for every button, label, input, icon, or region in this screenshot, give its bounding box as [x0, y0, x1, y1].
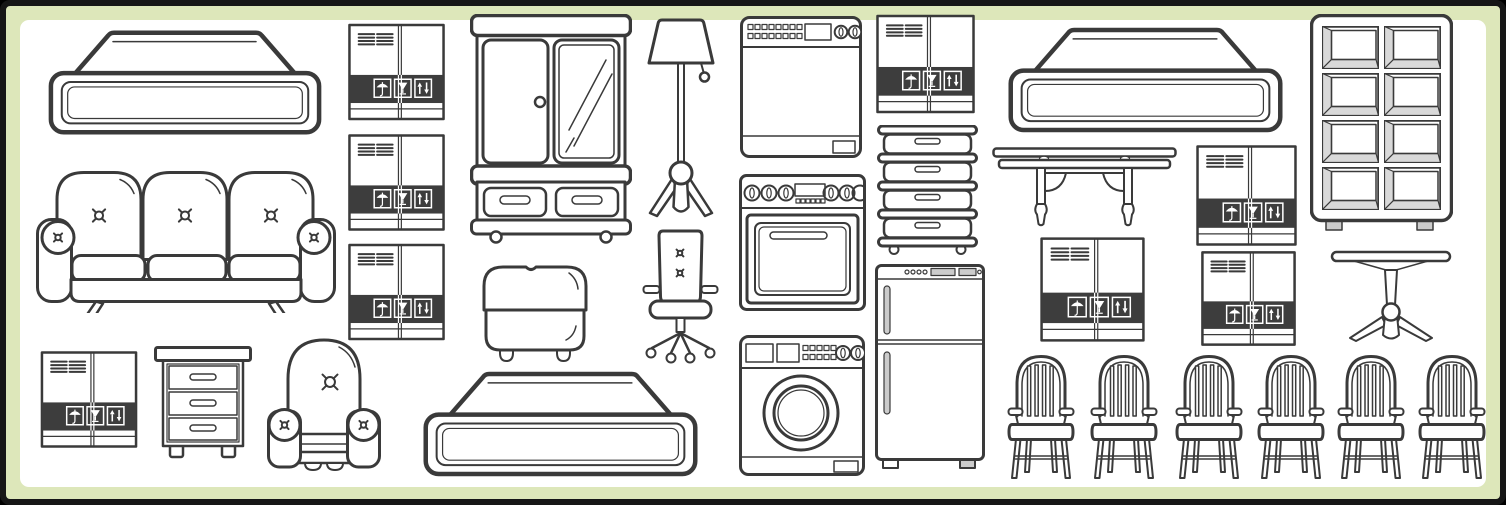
washing-machine-icon [741, 337, 866, 475]
dining-chair-6-icon [1420, 357, 1485, 479]
box-stack-middle-icon [349, 135, 443, 229]
scene-canvas [0, 0, 1506, 505]
box-bottom-left-icon [42, 352, 136, 446]
furniture-sheet [0, 0, 1506, 505]
armchair-icon [269, 340, 380, 470]
box-center-right-icon [1042, 239, 1144, 341]
box-stack-top-icon [349, 25, 443, 119]
mattress-bottom-center-icon [426, 374, 696, 474]
nightstand-icon [156, 348, 251, 458]
sofa-icon [38, 173, 335, 320]
office-chair-icon [644, 231, 718, 363]
console-table-icon [994, 149, 1176, 226]
fridge-icon [877, 266, 984, 469]
box-middle-top-icon [877, 16, 973, 112]
shelving-unit-icon [1312, 16, 1452, 231]
stove-icon [741, 176, 868, 310]
chest-of-drawers-icon [879, 126, 977, 254]
mattress-top-left-icon [51, 33, 319, 133]
dining-chair-2-icon [1092, 357, 1157, 479]
box-right-upper-icon [1198, 147, 1296, 245]
furniture-items-layer [38, 16, 1485, 479]
dining-chair-5-icon [1339, 357, 1404, 479]
box-stack-bottom-icon [349, 245, 443, 339]
pedestal-table-icon [1332, 252, 1450, 341]
dishwasher-icon [742, 18, 862, 157]
dining-chair-1-icon [1009, 357, 1074, 479]
dining-chair-4-icon [1259, 357, 1324, 479]
dining-chair-3-icon [1177, 357, 1242, 479]
ottoman-icon [484, 267, 586, 361]
box-right-lower-icon [1202, 252, 1294, 344]
floor-lamp-icon [649, 20, 713, 216]
mattress-top-right-icon [1011, 30, 1281, 130]
wardrobe-icon [472, 16, 631, 243]
